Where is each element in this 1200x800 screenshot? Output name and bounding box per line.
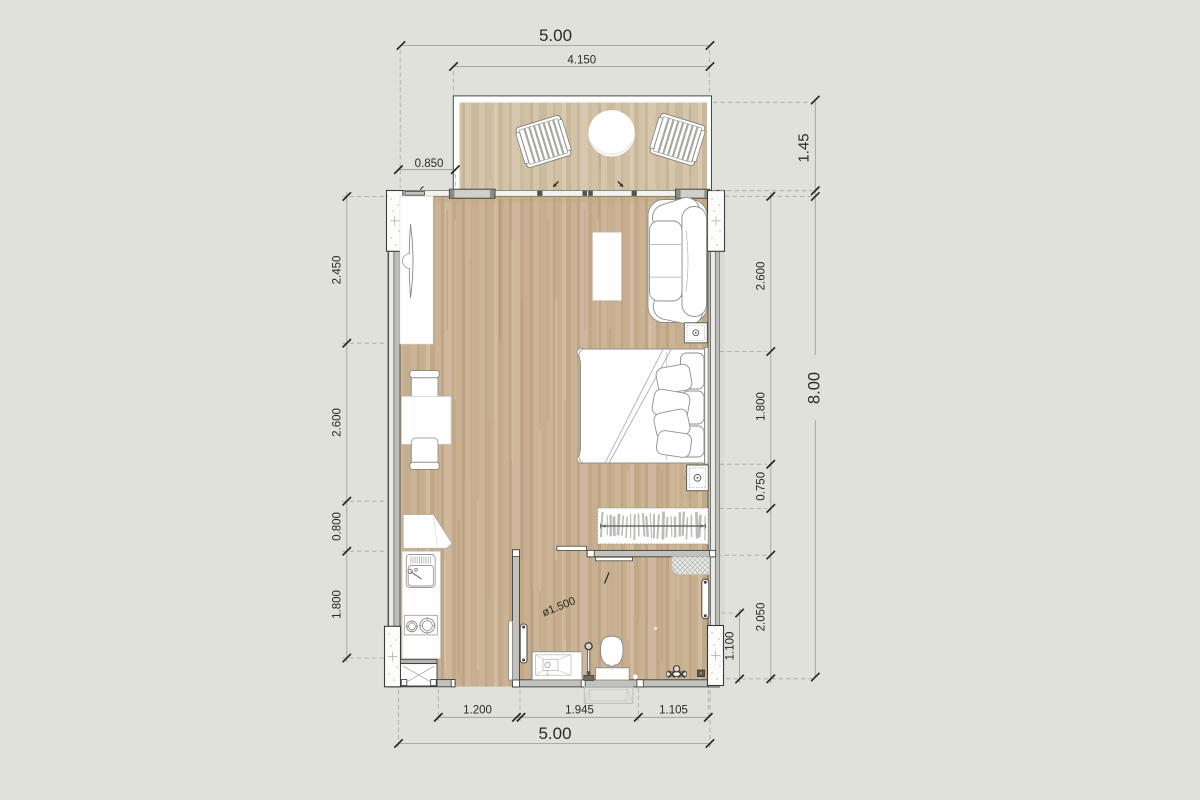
svg-text:1.945: 1.945 xyxy=(565,705,594,717)
svg-text:1.800: 1.800 xyxy=(756,392,768,421)
svg-text:2.450: 2.450 xyxy=(331,256,343,285)
svg-text:1.100: 1.100 xyxy=(725,632,737,661)
svg-text:0.750: 0.750 xyxy=(756,472,768,501)
svg-text:1.45: 1.45 xyxy=(796,133,813,162)
svg-text:1.105: 1.105 xyxy=(659,705,688,717)
svg-text:0.850: 0.850 xyxy=(415,158,444,170)
svg-text:5.00: 5.00 xyxy=(538,724,571,743)
svg-text:1.200: 1.200 xyxy=(463,705,492,717)
svg-text:4.150: 4.150 xyxy=(567,55,596,67)
svg-text:2.600: 2.600 xyxy=(331,408,343,437)
svg-text:2.600: 2.600 xyxy=(756,262,768,291)
svg-text:5.00: 5.00 xyxy=(539,26,572,45)
svg-text:2.050: 2.050 xyxy=(756,603,768,632)
svg-text:0.800: 0.800 xyxy=(331,512,343,541)
svg-text:1.800: 1.800 xyxy=(331,590,343,619)
svg-text:8.00: 8.00 xyxy=(806,372,824,404)
